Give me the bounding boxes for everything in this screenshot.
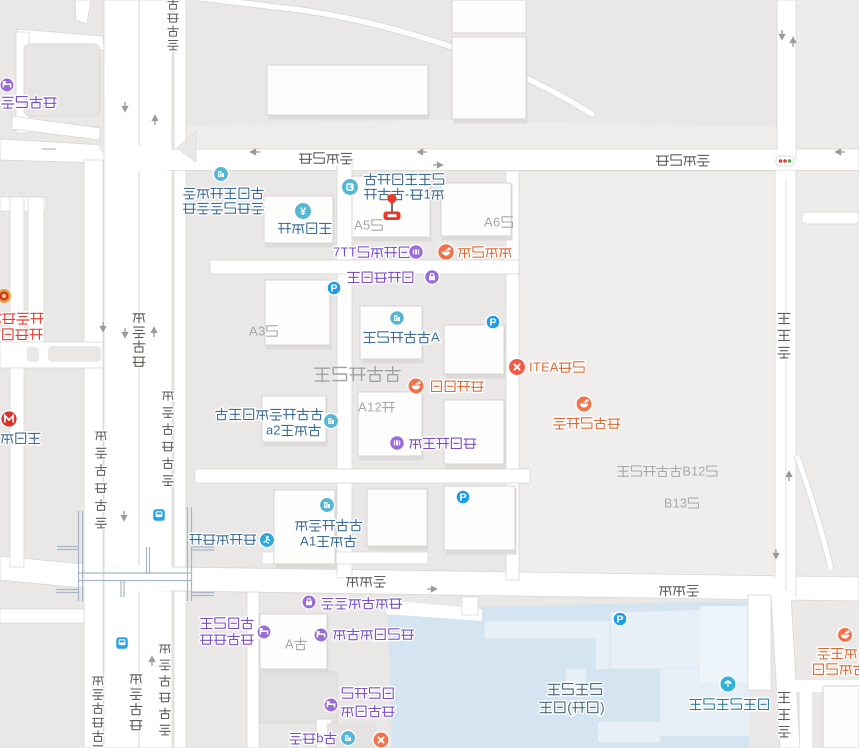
svg-text:¥: ¥ xyxy=(300,206,307,218)
svg-text:A: A xyxy=(431,330,440,345)
svg-text:b: b xyxy=(316,731,323,746)
svg-text:A1: A1 xyxy=(300,534,316,549)
svg-text:A12: A12 xyxy=(358,400,382,415)
svg-text:B12: B12 xyxy=(683,465,706,479)
svg-text:A5: A5 xyxy=(354,218,370,233)
svg-text:A3: A3 xyxy=(249,324,265,339)
svg-text:ITEA: ITEA xyxy=(529,360,559,375)
svg-text:a2: a2 xyxy=(266,423,281,438)
svg-text:7TT: 7TT xyxy=(333,245,357,260)
svg-text:P: P xyxy=(616,614,623,626)
svg-text:P: P xyxy=(330,283,337,295)
svg-text:P: P xyxy=(489,317,496,329)
svg-text:A: A xyxy=(285,637,294,652)
svg-text:P: P xyxy=(459,492,466,504)
svg-text:B13: B13 xyxy=(664,497,687,511)
svg-text:A6: A6 xyxy=(484,215,500,230)
